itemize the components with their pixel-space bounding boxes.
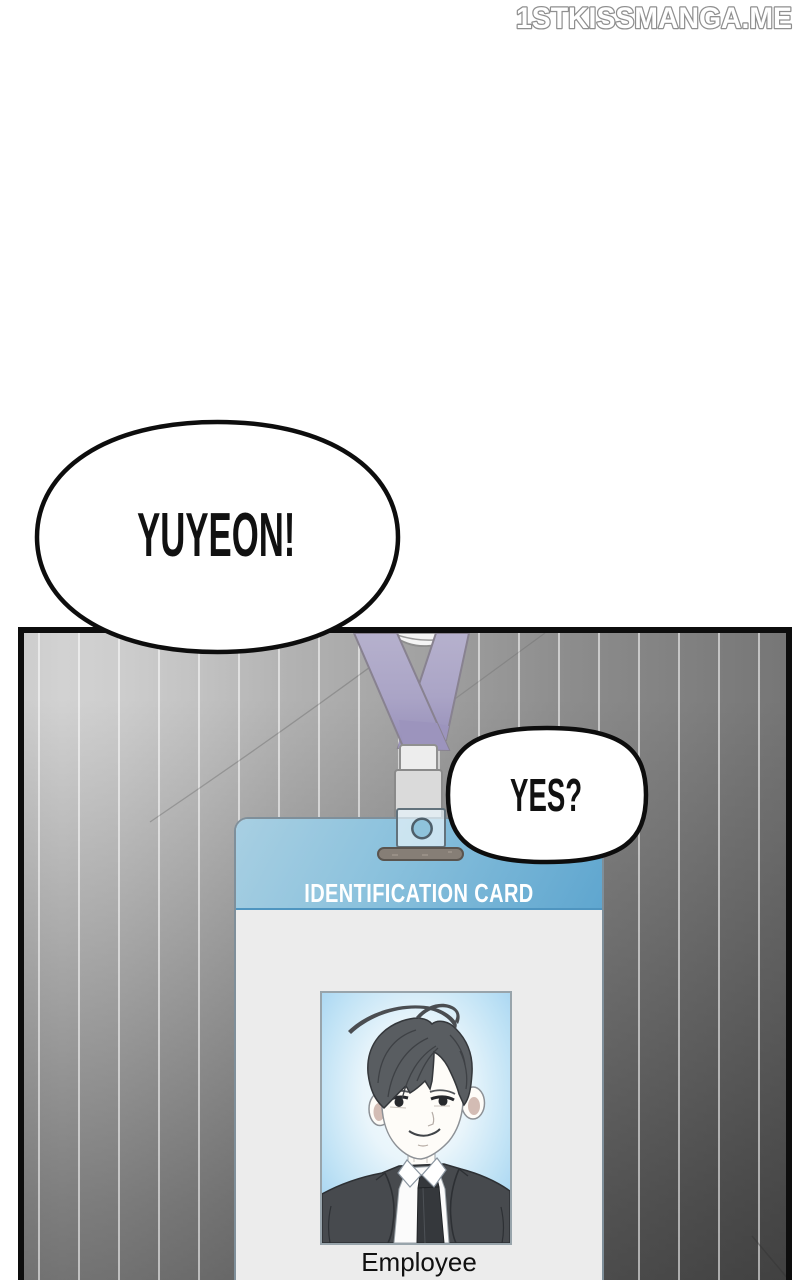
svg-text:1STKISSMANGA.ME: 1STKISSMANGA.ME xyxy=(516,2,792,35)
